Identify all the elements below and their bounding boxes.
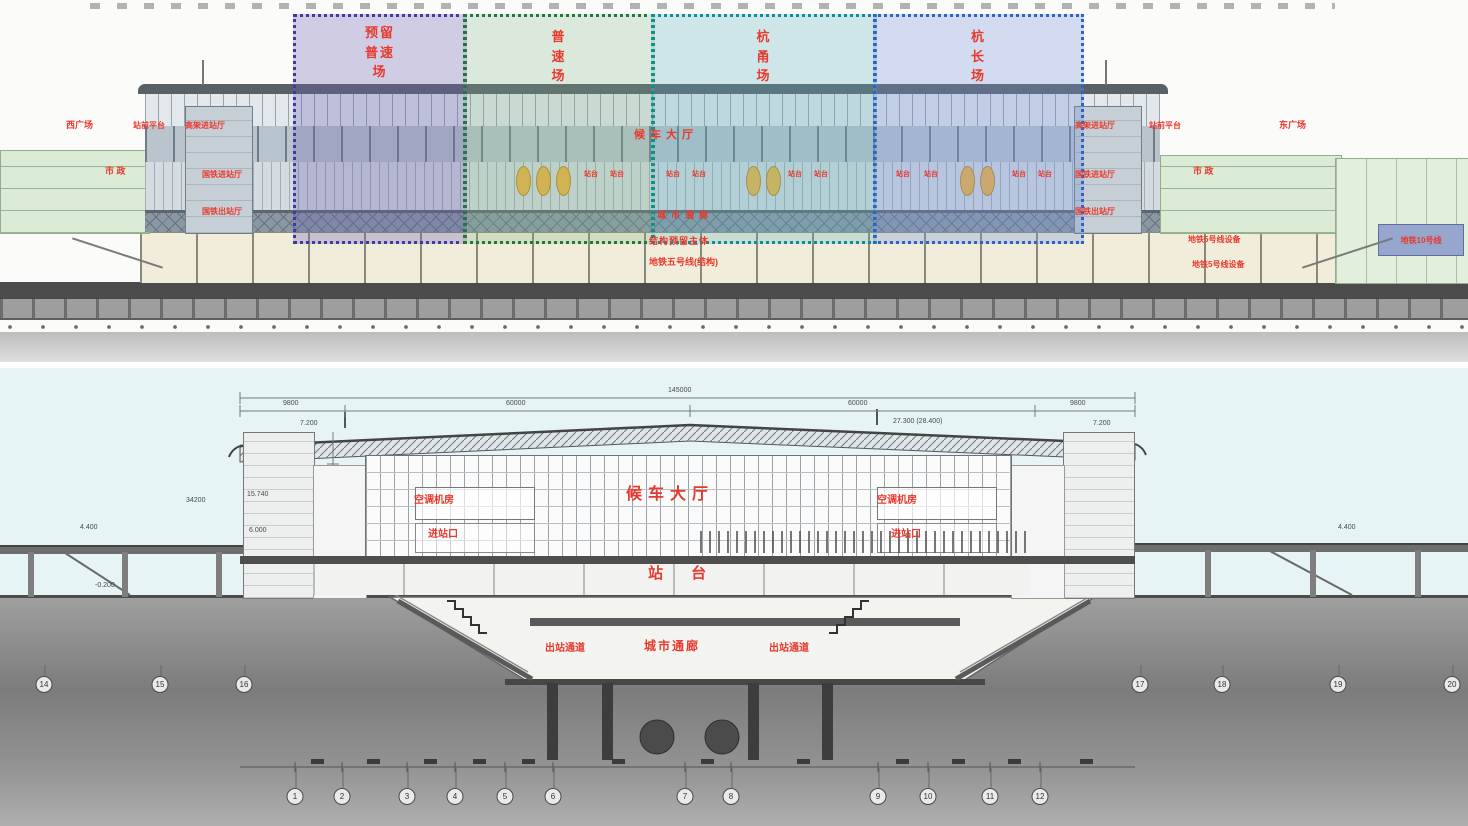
axis-dot-row [4, 321, 1464, 332]
annotation-label: 站台 [584, 171, 598, 178]
axis-row-bottom: 1 2 3 4 5 6 7 8 9 10 11 12 [0, 788, 1468, 804]
axis-bubble: 8 [723, 788, 740, 805]
axis-row-right: 17 18 19 20 [0, 676, 1468, 692]
axis-bubble: 6 [545, 788, 562, 805]
annotation-label: 60000 [848, 400, 867, 407]
roof-mast-west [202, 60, 204, 85]
annotation-label: 空调机房 [414, 496, 454, 506]
annotation-label: 地铁5号线设备 [1188, 236, 1240, 244]
annotation-label: 空调机房 [877, 496, 917, 506]
west-wing-block [0, 150, 150, 234]
annotation-label: 站台 [896, 171, 910, 178]
annotation-label: 东广场 [1279, 121, 1306, 130]
metro-line10-box: 地铁10号线 [1378, 224, 1464, 256]
annotation-label: 站台 [666, 171, 680, 178]
annotation-label: 城市通廊 [644, 640, 700, 652]
axis-bubble: 4 [447, 788, 464, 805]
annotation-label: 国铁出站厅 [202, 208, 242, 216]
annotation-label: 高架进站厅 [185, 122, 225, 130]
annotation-label: 站 台 [648, 566, 718, 581]
transverse-section-panel: 空调机房 进站口 候车大厅 空调机房 进站口 站 台 出站通道 城市通廊 出站通… [0, 368, 1468, 826]
blueprint-canvas: 地铁10号线 预留 普速 场 普 速 场 杭 甬 场 杭 [0, 0, 1468, 826]
axis-bubble: 7 [677, 788, 694, 805]
annotation-label: 站前平台 [133, 122, 165, 130]
roof-mast-east [1105, 60, 1107, 85]
bridge-column [1415, 550, 1421, 597]
annotation-label: 国铁进站厅 [1075, 171, 1115, 179]
annotation-label: -0.200 [95, 582, 115, 589]
zone-label: 预留 普速 场 [365, 23, 395, 82]
annotation-label: 34200 [186, 497, 205, 504]
annotation-label: 站台 [610, 171, 624, 178]
annotation-label: 60000 [506, 400, 525, 407]
east-side-tower [1063, 432, 1135, 599]
annotation-label: 出站通道 [545, 644, 585, 654]
annotation-label: 高架进站厅 [1075, 122, 1115, 130]
bridge-column [122, 552, 128, 597]
annotation-label: 9800 [283, 400, 299, 407]
annotation-label: 7.200 [300, 420, 318, 427]
axis-bubble: 5 [497, 788, 514, 805]
metro-line10-label: 地铁10号线 [1401, 235, 1442, 246]
annotation-label: 地铁五号线(结构) [649, 258, 718, 267]
annotation-label: 站前平台 [1149, 122, 1181, 130]
annotation-label: 站台 [814, 171, 828, 178]
zone-hangchang-yard: 杭 长 场 [873, 14, 1084, 244]
west-side-tower [243, 432, 315, 599]
zone-normal-speed-yard: 普 速 场 [463, 14, 655, 244]
zone-label: 杭 长 场 [971, 27, 986, 86]
bridge-column [1205, 550, 1211, 597]
annotation-label: 站台 [1038, 171, 1052, 178]
annotation-label: 市 政 [1193, 167, 1214, 176]
annotation-label: 站台 [1012, 171, 1026, 178]
annotation-label: 15.740 [247, 491, 268, 498]
annotation-label: 市 政 [105, 167, 126, 176]
bridge-column [28, 552, 34, 597]
axis-bubble: 12 [1032, 788, 1049, 805]
axis-bubble: 11 [982, 788, 999, 805]
ground-line [0, 318, 1468, 320]
annotation-label: 6.000 [249, 527, 267, 534]
annotation-label: 27.300 (28.400) [893, 418, 942, 425]
zone-label: 普 速 场 [551, 27, 566, 86]
annotation-label: 出站通道 [769, 644, 809, 654]
annotation-label: 候车大厅 [634, 130, 698, 141]
zone-label: 杭 甬 场 [756, 27, 771, 86]
foundation-columns [0, 299, 1468, 318]
ground-band [0, 282, 1468, 299]
axis-bubble: 20 [1444, 676, 1461, 693]
ground-light [0, 332, 1468, 362]
axis-bubble: 1 [287, 788, 304, 805]
annotation-label: 候车大厅 [626, 487, 714, 503]
axis-bubble: 9 [870, 788, 887, 805]
far-east-block [1335, 158, 1468, 284]
annotation-label: 西广场 [66, 121, 93, 130]
annotation-label: 国铁出站厅 [1075, 208, 1115, 216]
hall-balustrade [700, 531, 1032, 553]
axis-bubble: 2 [334, 788, 351, 805]
annotation-label: 结构预留主体 [649, 237, 709, 246]
axis-bubble: 18 [1214, 676, 1231, 693]
zone-reserved-normal-speed-yard: 预留 普速 场 [293, 14, 467, 244]
axis-bubble: 19 [1330, 676, 1347, 693]
annotation-label: 站台 [788, 171, 802, 178]
annotation-label: 4.400 [1338, 524, 1356, 531]
section-linework [0, 368, 1468, 826]
annotation-label: 国铁进站厅 [202, 171, 242, 179]
bridge-column [216, 552, 222, 597]
axis-bubble: 3 [399, 788, 416, 805]
annotation-label: 进站口 [428, 530, 458, 540]
annotation-label: 城市通廊 [657, 211, 713, 220]
annotation-label: 进站口 [891, 530, 921, 540]
annotation-label: 7.200 [1093, 420, 1111, 427]
annotation-label: 站台 [692, 171, 706, 178]
annotation-label: 145000 [668, 387, 691, 394]
annotation-label: 9800 [1070, 400, 1086, 407]
axis-bubble: 10 [920, 788, 937, 805]
east-wing-block [1160, 155, 1342, 234]
longitudinal-section-panel: 地铁10号线 预留 普速 场 普 速 场 杭 甬 场 杭 [0, 0, 1468, 362]
annotation-label: 4.400 [80, 524, 98, 531]
annotation-label: 站台 [924, 171, 938, 178]
axis-bubble: 17 [1132, 676, 1149, 693]
platform-slab [240, 556, 1135, 564]
annotation-label: 地铁5号线设备 [1192, 261, 1244, 269]
bridge-column [1310, 550, 1316, 597]
top-dimension-strip [90, 3, 1335, 9]
